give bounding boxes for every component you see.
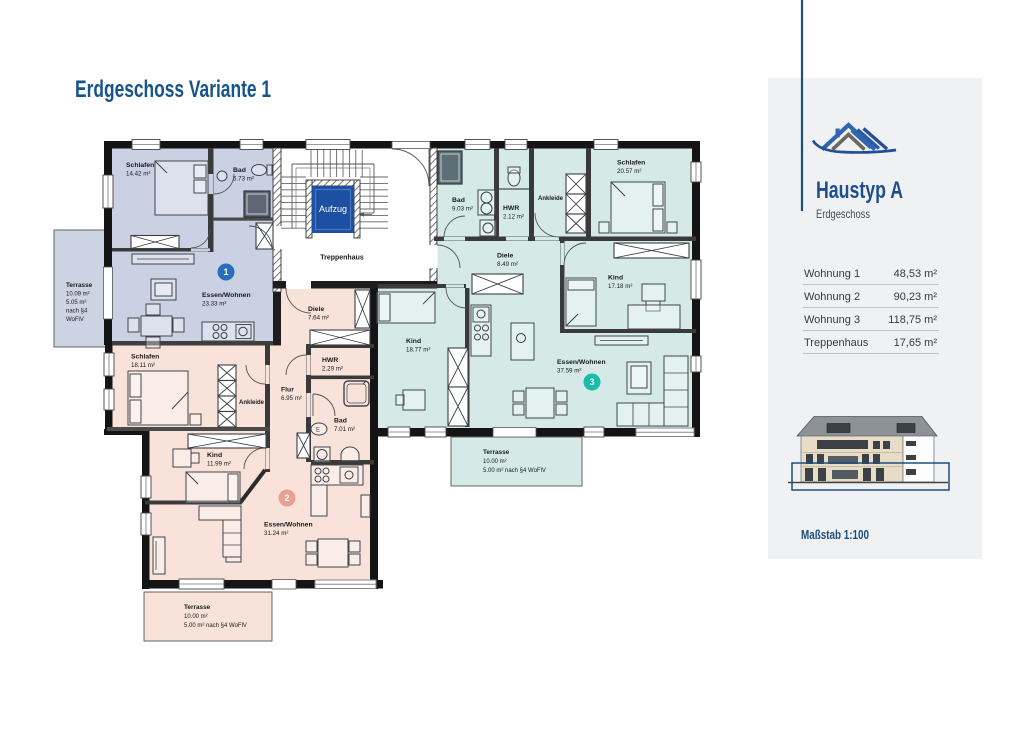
svg-text:Schlafen: Schlafen <box>126 162 154 169</box>
svg-text:Wohnung 1: Wohnung 1 <box>804 268 860 280</box>
svg-text:Haustyp A: Haustyp A <box>816 177 903 204</box>
svg-text:Kind: Kind <box>406 338 421 345</box>
svg-text:2.12 m²: 2.12 m² <box>503 214 524 221</box>
svg-text:HWR: HWR <box>503 205 519 212</box>
svg-text:Aufzug: Aufzug <box>319 204 347 214</box>
svg-text:Terrasse: Terrasse <box>483 449 510 456</box>
svg-text:Bad: Bad <box>233 167 246 174</box>
svg-text:2.29 m²: 2.29 m² <box>322 366 343 373</box>
svg-text:Terrasse: Terrasse <box>66 282 93 289</box>
svg-text:Wohnung 2: Wohnung 2 <box>804 291 860 303</box>
svg-text:Erdgeschoss: Erdgeschoss <box>816 207 870 221</box>
svg-text:17.18 m²: 17.18 m² <box>608 283 632 290</box>
svg-text:5.00 m² nach §4 WoFlV: 5.00 m² nach §4 WoFlV <box>483 468 546 474</box>
svg-text:Terrasse: Terrasse <box>184 604 211 611</box>
svg-text:nach §4: nach §4 <box>66 309 88 315</box>
svg-text:Flur: Flur <box>281 387 294 394</box>
svg-text:10.00 m²: 10.00 m² <box>184 614 208 620</box>
svg-text:Schlafen: Schlafen <box>131 354 159 361</box>
svg-text:Erdgeschoss Variante 1: Erdgeschoss Variante 1 <box>75 76 271 103</box>
svg-text:7.01 m²: 7.01 m² <box>334 426 355 433</box>
svg-text:10.09 m²: 10.09 m² <box>66 292 90 298</box>
svg-text:18.77 m²: 18.77 m² <box>406 347 430 354</box>
svg-text:Ankleide: Ankleide <box>239 399 264 406</box>
svg-text:Bad: Bad <box>452 197 465 204</box>
svg-text:9.03 m²: 9.03 m² <box>452 206 473 213</box>
svg-text:48,53 m²: 48,53 m² <box>894 268 938 280</box>
svg-text:HWR: HWR <box>322 357 338 364</box>
svg-text:17,65 m²: 17,65 m² <box>894 337 938 349</box>
svg-text:5.73 m²: 5.73 m² <box>233 176 254 183</box>
svg-text:11.99 m²: 11.99 m² <box>207 461 231 468</box>
svg-text:Treppenhaus: Treppenhaus <box>804 337 869 349</box>
svg-text:Diele: Diele <box>308 306 324 313</box>
svg-text:Wohnung 3: Wohnung 3 <box>804 314 860 326</box>
svg-text:20.57 m²: 20.57 m² <box>617 168 641 175</box>
svg-text:Essen/Wohnen: Essen/Wohnen <box>202 292 251 299</box>
svg-text:5.05 m²: 5.05 m² <box>66 300 86 306</box>
svg-text:118,75 m²: 118,75 m² <box>888 314 937 326</box>
svg-text:Schlafen: Schlafen <box>617 160 645 167</box>
svg-text:3: 3 <box>589 377 594 387</box>
svg-text:18.11 m²: 18.11 m² <box>131 362 155 369</box>
svg-text:10.00 m²: 10.00 m² <box>483 459 507 465</box>
svg-text:E: E <box>316 428 320 434</box>
svg-text:Essen/Wohnen: Essen/Wohnen <box>557 359 606 366</box>
svg-text:Treppenhaus: Treppenhaus <box>320 255 364 262</box>
svg-text:2: 2 <box>284 493 289 503</box>
svg-text:Kind: Kind <box>207 452 222 459</box>
svg-text:Kind: Kind <box>608 275 623 282</box>
svg-text:37.59 m²: 37.59 m² <box>557 368 581 375</box>
svg-text:90,23 m²: 90,23 m² <box>894 291 938 303</box>
svg-text:1: 1 <box>223 267 228 277</box>
svg-text:Maßstab 1:100: Maßstab 1:100 <box>801 528 869 542</box>
svg-text:23.33 m²: 23.33 m² <box>202 301 226 308</box>
svg-text:7.64 m²: 7.64 m² <box>308 315 329 322</box>
svg-text:6.95 m²: 6.95 m² <box>281 395 302 402</box>
svg-text:14.42 m²: 14.42 m² <box>126 171 150 178</box>
svg-text:Bad: Bad <box>334 418 347 425</box>
svg-text:Essen/Wohnen: Essen/Wohnen <box>264 522 313 529</box>
svg-text:8.49 m²: 8.49 m² <box>497 261 518 268</box>
svg-text:WoFlV: WoFlV <box>66 317 84 323</box>
svg-text:31.24 m²: 31.24 m² <box>264 530 288 537</box>
svg-text:5.00 m² nach §4 WoFlV: 5.00 m² nach §4 WoFlV <box>184 623 247 629</box>
svg-text:Diele: Diele <box>497 253 513 260</box>
svg-text:Ankleide: Ankleide <box>538 195 563 202</box>
